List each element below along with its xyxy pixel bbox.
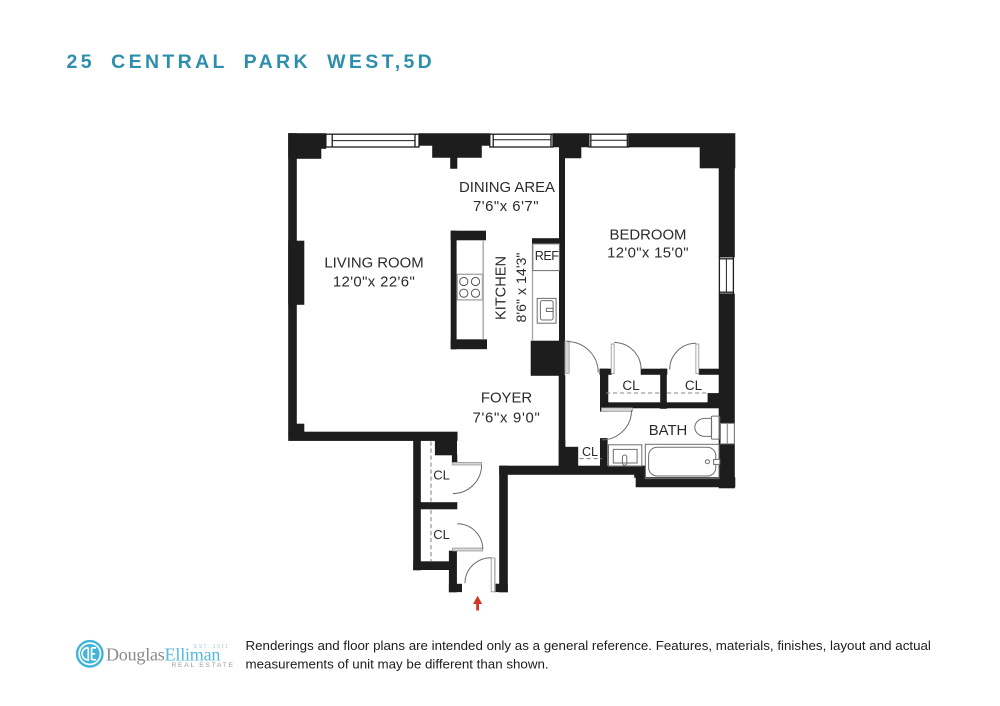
svg-text:DINING AREA: DINING AREA <box>459 180 555 196</box>
svg-text:8'6" x 14'3": 8'6" x 14'3" <box>514 253 530 323</box>
svg-text:LIVING ROOM: LIVING ROOM <box>324 256 423 272</box>
svg-text:BATH: BATH <box>649 423 688 439</box>
svg-text:12'0"x 22'6": 12'0"x 22'6" <box>333 275 415 291</box>
svg-text:25 CENTRAL PARK WEST,5D: 25 CENTRAL PARK WEST,5D <box>67 51 436 73</box>
svg-text:KITCHEN: KITCHEN <box>493 256 509 320</box>
svg-text:REF: REF <box>535 249 559 263</box>
svg-text:7'6"x 9'0": 7'6"x 9'0" <box>473 411 541 427</box>
svg-text:Renderings and floor plans are: Renderings and floor plans are intended … <box>246 638 931 653</box>
svg-text:measurements of unit may be di: measurements of unit may be different th… <box>246 657 549 672</box>
svg-text:REAL ESTATE: REAL ESTATE <box>172 662 235 669</box>
svg-text:7'6"x 6'7": 7'6"x 6'7" <box>473 199 539 215</box>
svg-text:12'0"x 15'0": 12'0"x 15'0" <box>607 246 689 262</box>
svg-text:FOYER: FOYER <box>481 391 533 407</box>
svg-text:CL: CL <box>433 468 450 483</box>
svg-text:CL: CL <box>433 527 450 542</box>
svg-text:CL: CL <box>582 445 598 459</box>
svg-text:CL: CL <box>685 378 703 393</box>
svg-text:EST. 1911: EST. 1911 <box>194 644 229 650</box>
svg-text:CL: CL <box>622 378 640 393</box>
svg-text:BEDROOM: BEDROOM <box>610 228 687 244</box>
